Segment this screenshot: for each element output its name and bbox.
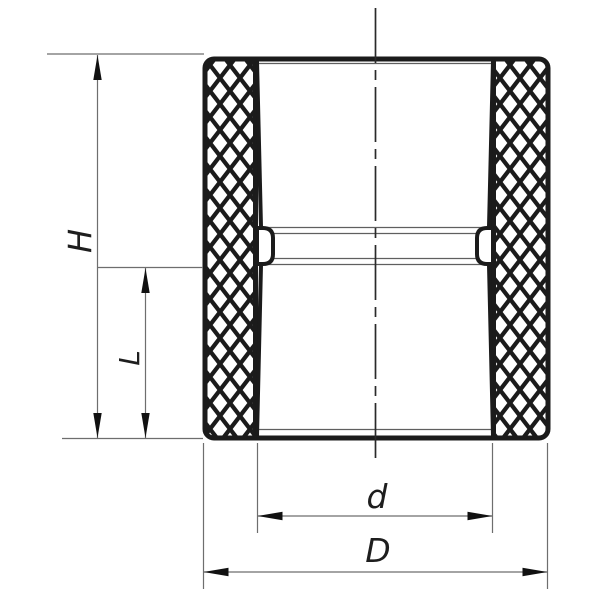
dimension-H-label: H	[61, 229, 99, 253]
D-arrow-right	[523, 568, 548, 576]
technical-drawing-page: H L d D	[0, 0, 600, 600]
d-arrow-right	[468, 512, 493, 520]
left-knurl-band	[203, 57, 256, 440]
dimension-d-label: d	[367, 477, 389, 516]
dimension-L: L	[98, 268, 204, 439]
H-arrow-down	[93, 413, 101, 438]
dimension-D-label: D	[365, 531, 390, 570]
D-arrow-left	[204, 568, 229, 576]
dimension-H: H	[47, 54, 204, 439]
coupling-drawing-canvas: H L d D	[0, 0, 600, 600]
H-arrow-up	[93, 55, 101, 80]
L-arrow-down	[141, 413, 149, 438]
right-knurl-band	[493, 57, 550, 440]
dimension-L-label: L	[113, 350, 146, 366]
coupling-body	[203, 57, 550, 440]
d-arrow-left	[258, 512, 283, 520]
left-center-rib	[257, 228, 273, 264]
right-center-rib	[477, 228, 493, 264]
L-arrow-up	[141, 268, 149, 293]
